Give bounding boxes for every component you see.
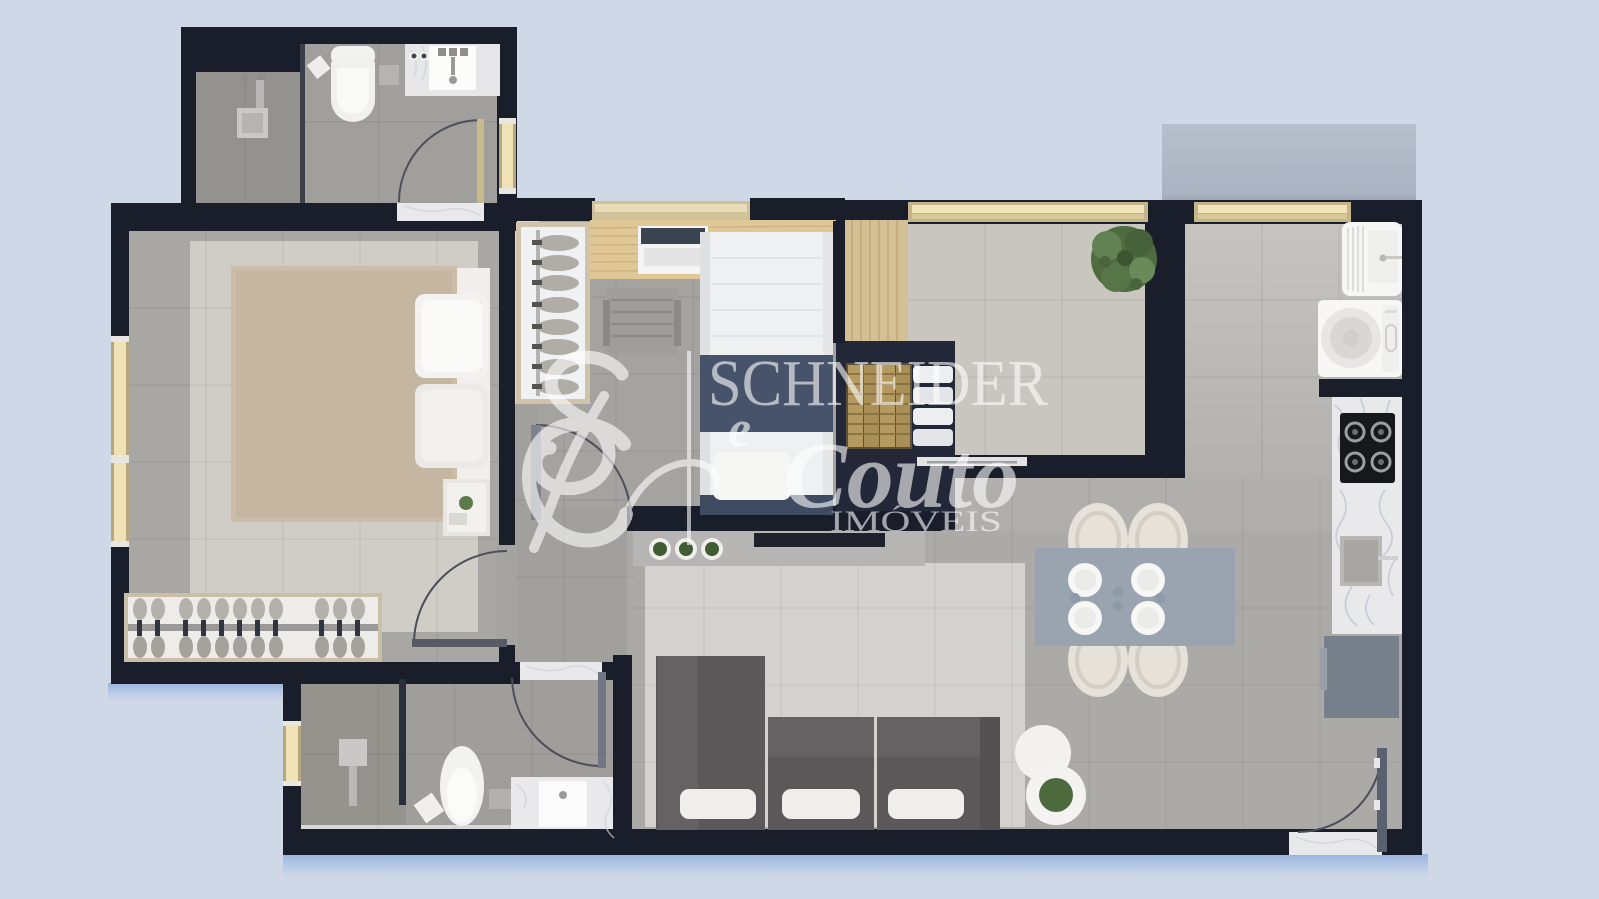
svg-text:e: e: [728, 401, 751, 458]
svg-text:IMÓVEIS: IMÓVEIS: [830, 505, 1002, 538]
svg-text:SCHNEIDER: SCHNEIDER: [708, 347, 1048, 420]
